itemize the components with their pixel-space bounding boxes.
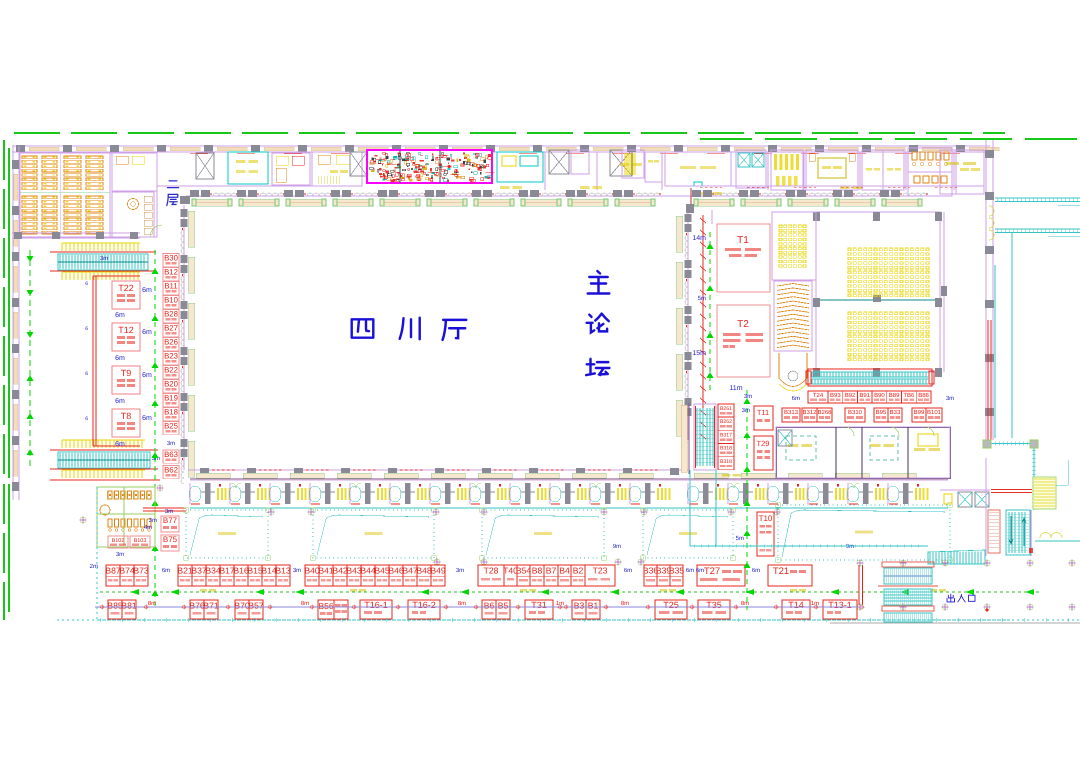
svg-text:B262: B262 xyxy=(720,419,732,425)
svg-text:B54: B54 xyxy=(516,566,532,576)
svg-text:B77: B77 xyxy=(163,516,178,525)
svg-text:15m: 15m xyxy=(692,350,706,357)
svg-text:B88: B88 xyxy=(918,392,929,399)
svg-text:14m: 14m xyxy=(692,235,706,242)
svg-text:B2: B2 xyxy=(573,566,584,576)
svg-text:B71: B71 xyxy=(203,601,219,611)
svg-text:B13: B13 xyxy=(275,566,291,576)
svg-text:6m: 6m xyxy=(696,567,704,574)
svg-text:T28: T28 xyxy=(484,566,499,576)
svg-text:2m: 2m xyxy=(90,563,98,570)
svg-text:T16-1: T16-1 xyxy=(364,600,388,610)
svg-text:6m: 6m xyxy=(792,395,800,402)
svg-text:B57: B57 xyxy=(248,601,264,611)
svg-text:B56: B56 xyxy=(318,601,333,611)
svg-text:3m: 3m xyxy=(100,255,108,262)
svg-text:6m: 6m xyxy=(115,312,125,319)
svg-text:B312: B312 xyxy=(802,409,817,416)
svg-text:3m: 3m xyxy=(946,395,954,402)
svg-text:B11: B11 xyxy=(164,281,177,290)
svg-text:T35: T35 xyxy=(706,600,722,610)
svg-text:3m: 3m xyxy=(149,517,157,524)
svg-text:B8: B8 xyxy=(532,566,543,576)
svg-text:B313: B313 xyxy=(784,409,799,416)
svg-text:T9: T9 xyxy=(121,368,132,378)
svg-text:6: 6 xyxy=(85,281,88,287)
svg-text:B89: B89 xyxy=(889,392,900,399)
svg-text:6m: 6m xyxy=(115,355,125,362)
svg-text:6: 6 xyxy=(85,416,88,422)
svg-text:B95: B95 xyxy=(876,409,887,416)
svg-text:B93: B93 xyxy=(830,392,841,399)
svg-text:B4: B4 xyxy=(559,566,570,576)
svg-text:9m: 9m xyxy=(846,543,854,550)
svg-text:3m: 3m xyxy=(165,508,173,515)
svg-text:T25: T25 xyxy=(663,600,679,610)
svg-text:T29: T29 xyxy=(757,439,770,448)
svg-text:3m: 3m xyxy=(293,567,301,574)
svg-text:B317: B317 xyxy=(720,432,732,438)
svg-text:T23: T23 xyxy=(593,566,608,576)
svg-text:3m: 3m xyxy=(167,440,175,447)
svg-text:B30: B30 xyxy=(164,253,179,262)
svg-text:6m: 6m xyxy=(115,441,125,448)
svg-text:B23: B23 xyxy=(164,351,178,360)
svg-text:8m: 8m xyxy=(301,600,309,607)
svg-text:B318: B318 xyxy=(720,459,732,465)
svg-text:B73: B73 xyxy=(133,566,149,576)
svg-text:5m: 5m xyxy=(698,295,706,302)
svg-text:B20: B20 xyxy=(164,379,179,388)
svg-text:6m: 6m xyxy=(142,372,152,379)
svg-text:T10: T10 xyxy=(759,514,773,523)
svg-text:1m: 1m xyxy=(811,600,819,607)
svg-text:T2: T2 xyxy=(737,319,749,330)
svg-text:B90: B90 xyxy=(874,392,885,399)
svg-text:T8: T8 xyxy=(121,411,132,421)
svg-text:T24: T24 xyxy=(813,392,824,399)
svg-text:6m: 6m xyxy=(115,398,125,405)
svg-text:B22: B22 xyxy=(164,365,178,374)
svg-text:B28: B28 xyxy=(164,309,178,318)
svg-text:8m: 8m xyxy=(458,600,466,607)
svg-text:B6: B6 xyxy=(484,601,495,611)
svg-text:B33: B33 xyxy=(890,409,901,416)
svg-text:3m: 3m xyxy=(744,393,752,400)
svg-text:B7: B7 xyxy=(546,566,557,576)
svg-text:B92: B92 xyxy=(845,392,856,399)
svg-text:T22: T22 xyxy=(118,283,134,293)
svg-text:6m: 6m xyxy=(624,567,632,574)
svg-text:B81: B81 xyxy=(121,601,137,611)
svg-text:6: 6 xyxy=(85,371,88,377)
svg-text:3m: 3m xyxy=(456,567,464,574)
svg-text:B19: B19 xyxy=(164,393,178,402)
svg-text:B3: B3 xyxy=(574,601,585,611)
svg-text:B25: B25 xyxy=(164,421,179,430)
svg-text:B18: B18 xyxy=(164,407,178,416)
svg-text:B318: B318 xyxy=(720,446,732,452)
svg-text:B10: B10 xyxy=(164,295,179,304)
svg-text:B62: B62 xyxy=(164,465,178,474)
svg-text:B35: B35 xyxy=(669,566,685,576)
svg-text:T14: T14 xyxy=(788,600,804,610)
svg-text:T12: T12 xyxy=(118,325,134,335)
svg-text:B102: B102 xyxy=(112,538,125,544)
svg-text:B12: B12 xyxy=(164,267,178,276)
svg-text:6m: 6m xyxy=(752,567,760,574)
svg-text:T1: T1 xyxy=(737,235,749,246)
svg-text:B1: B1 xyxy=(588,601,599,611)
svg-text:3m: 3m xyxy=(116,551,124,558)
svg-text:T13-1: T13-1 xyxy=(828,600,852,610)
svg-text:B101: B101 xyxy=(927,409,942,416)
svg-text:6m: 6m xyxy=(142,415,152,422)
svg-text:B49: B49 xyxy=(430,566,446,576)
svg-text:B75: B75 xyxy=(163,535,178,544)
svg-text:9m: 9m xyxy=(613,543,621,550)
svg-text:T27: T27 xyxy=(704,566,720,577)
svg-text:B5: B5 xyxy=(498,601,509,611)
svg-text:6m: 6m xyxy=(142,287,152,294)
svg-text:4m: 4m xyxy=(144,524,152,531)
svg-text:8m: 8m xyxy=(741,600,749,607)
svg-text:B63: B63 xyxy=(164,450,178,459)
svg-text:B99: B99 xyxy=(914,409,925,416)
svg-text:TB6: TB6 xyxy=(903,392,915,399)
svg-text:6m: 6m xyxy=(162,567,170,574)
svg-text:B103: B103 xyxy=(134,538,147,544)
svg-text:B27: B27 xyxy=(164,323,178,332)
svg-text:6: 6 xyxy=(85,326,88,332)
svg-text:T21: T21 xyxy=(773,566,789,577)
svg-text:B26: B26 xyxy=(164,337,178,346)
svg-text:T11: T11 xyxy=(757,408,769,417)
svg-text:8m: 8m xyxy=(148,600,156,607)
svg-text:6m: 6m xyxy=(142,329,152,336)
svg-text:B261: B261 xyxy=(720,406,732,412)
svg-text:B268: B268 xyxy=(817,409,832,416)
svg-text:3m: 3m xyxy=(742,407,750,414)
svg-text:11m: 11m xyxy=(729,385,742,392)
svg-text:8m: 8m xyxy=(621,600,629,607)
svg-text:T31: T31 xyxy=(531,600,547,610)
svg-text:B310: B310 xyxy=(848,409,863,416)
svg-text:B91: B91 xyxy=(859,392,870,399)
svg-text:5m: 5m xyxy=(736,535,744,542)
svg-text:6m: 6m xyxy=(686,567,694,574)
svg-text:T16-2: T16-2 xyxy=(412,600,436,610)
